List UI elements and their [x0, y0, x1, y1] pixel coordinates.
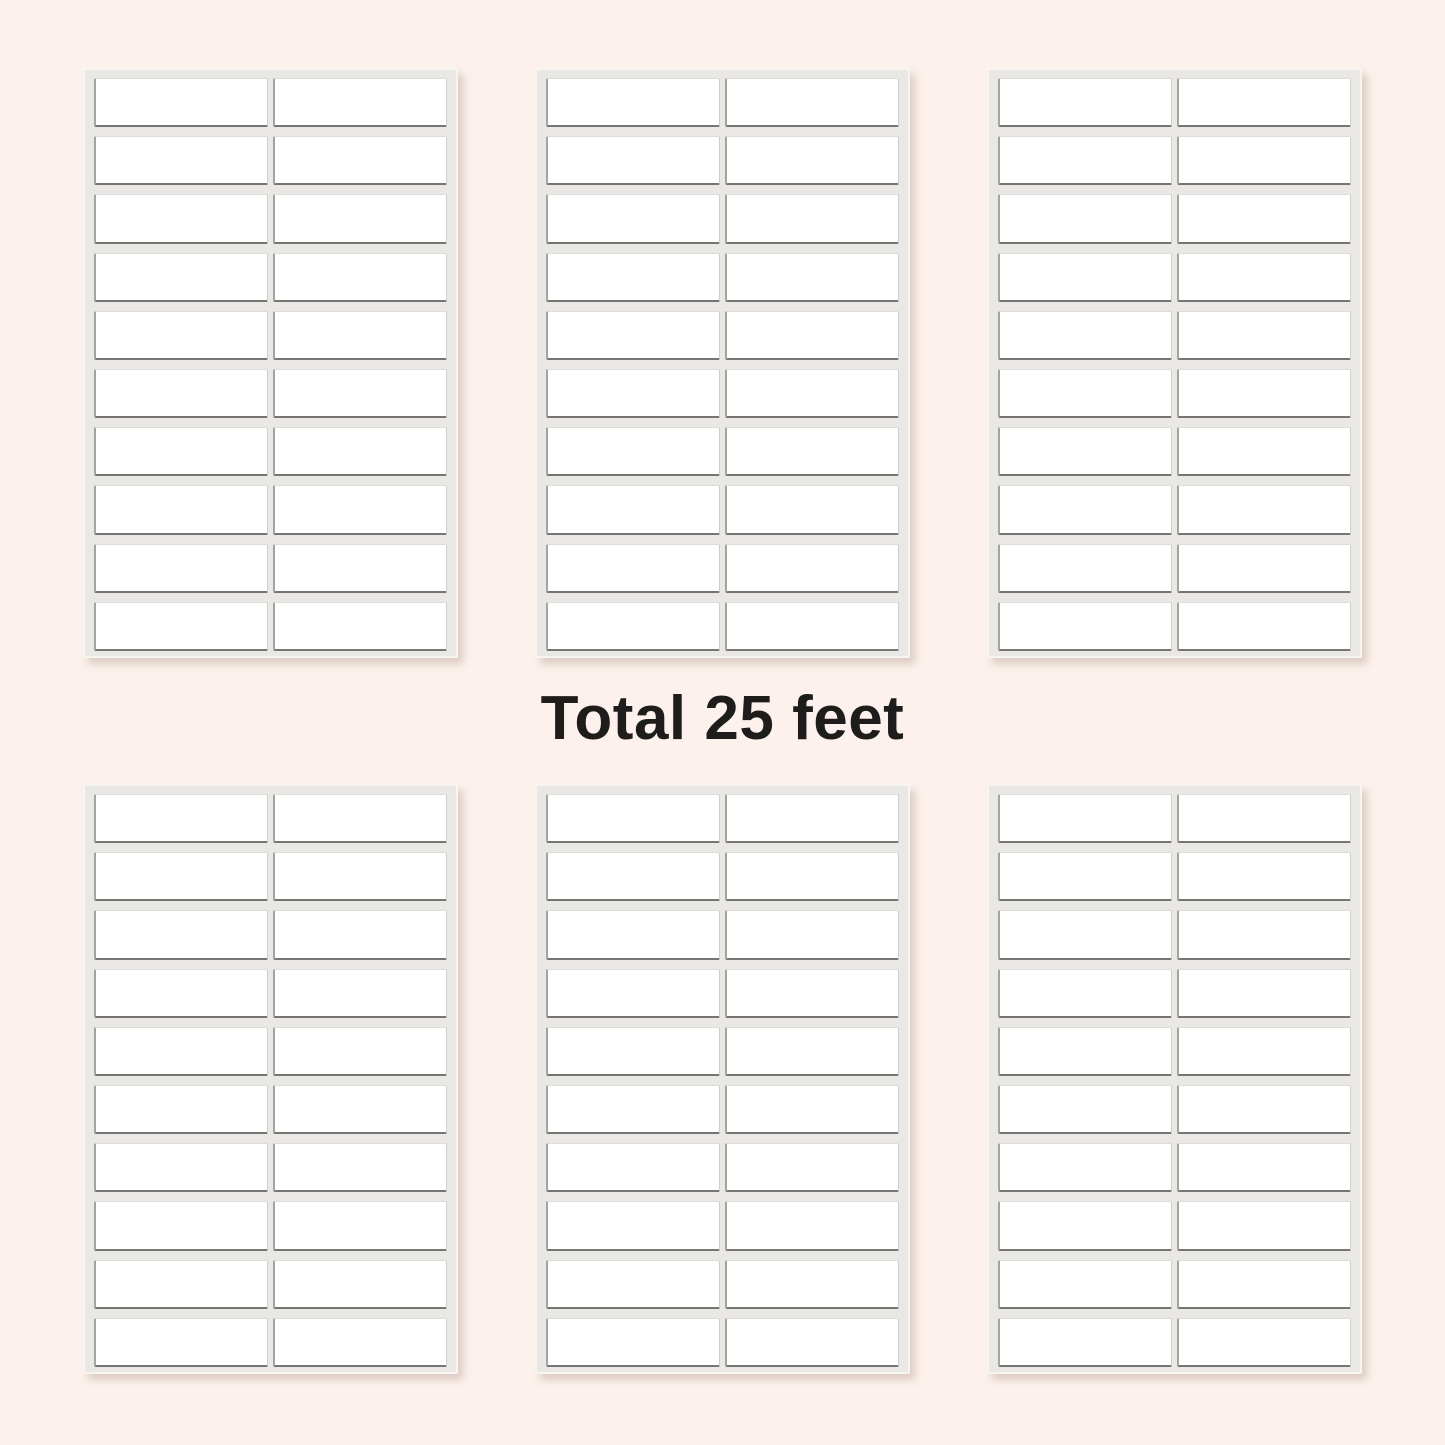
blank-label: [94, 969, 268, 1018]
blank-label: [725, 369, 899, 418]
blank-label: [273, 969, 447, 1018]
blank-label: [273, 369, 447, 418]
blank-label: [1177, 910, 1351, 959]
blank-label: [94, 544, 268, 593]
blank-label: [725, 910, 899, 959]
blank-label: [998, 1085, 1172, 1134]
blank-label: [998, 1143, 1172, 1192]
blank-label: [998, 602, 1172, 651]
blank-label: [546, 369, 720, 418]
blank-label: [273, 253, 447, 302]
blank-label: [546, 544, 720, 593]
blank-label: [546, 311, 720, 360]
blank-label: [1177, 1201, 1351, 1250]
blank-label: [94, 1201, 268, 1250]
blank-label: [94, 78, 268, 127]
blank-label: [94, 910, 268, 959]
blank-label: [1177, 369, 1351, 418]
blank-label: [725, 427, 899, 476]
label-sheet-1: [83, 68, 458, 658]
blank-label: [273, 910, 447, 959]
blank-label: [94, 136, 268, 185]
blank-label: [725, 1201, 899, 1250]
blank-label: [725, 485, 899, 534]
blank-label: [998, 1260, 1172, 1309]
blank-label: [94, 485, 268, 534]
blank-label: [94, 1260, 268, 1309]
blank-label: [273, 1318, 447, 1367]
blank-label: [1177, 1085, 1351, 1134]
blank-label: [998, 1201, 1172, 1250]
blank-label: [94, 253, 268, 302]
blank-label: [546, 910, 720, 959]
blank-label: [998, 969, 1172, 1018]
blank-label: [725, 136, 899, 185]
blank-label: [546, 1027, 720, 1076]
blank-label: [273, 1260, 447, 1309]
blank-label: [1177, 136, 1351, 185]
blank-label: [546, 485, 720, 534]
blank-label: [273, 544, 447, 593]
blank-label: [998, 253, 1172, 302]
blank-label: [998, 78, 1172, 127]
blank-label: [273, 852, 447, 901]
label-sheet-6: [987, 784, 1362, 1374]
blank-label: [546, 1201, 720, 1250]
blank-label: [725, 253, 899, 302]
blank-label: [998, 1027, 1172, 1076]
blank-label: [1177, 253, 1351, 302]
blank-label: [725, 78, 899, 127]
blank-label: [546, 78, 720, 127]
blank-label: [273, 1027, 447, 1076]
blank-label: [273, 1143, 447, 1192]
blank-label: [725, 969, 899, 1018]
blank-label: [725, 1085, 899, 1134]
blank-label: [94, 1318, 268, 1367]
blank-label: [546, 969, 720, 1018]
blank-label: [998, 544, 1172, 593]
blank-label: [94, 1027, 268, 1076]
blank-label: [1177, 544, 1351, 593]
blank-label: [94, 427, 268, 476]
blank-label: [725, 794, 899, 843]
blank-label: [546, 136, 720, 185]
blank-label: [998, 427, 1172, 476]
blank-label: [546, 1085, 720, 1134]
blank-label: [94, 1143, 268, 1192]
blank-label: [273, 602, 447, 651]
blank-label: [273, 1085, 447, 1134]
blank-label: [546, 1143, 720, 1192]
blank-label: [725, 544, 899, 593]
blank-label: [1177, 1143, 1351, 1192]
blank-label: [725, 1260, 899, 1309]
blank-label: [998, 311, 1172, 360]
blank-label: [998, 852, 1172, 901]
blank-label: [1177, 1318, 1351, 1367]
blank-label: [1177, 602, 1351, 651]
blank-label: [546, 427, 720, 476]
blank-label: [998, 369, 1172, 418]
blank-label: [1177, 78, 1351, 127]
blank-label: [546, 1260, 720, 1309]
blank-label: [998, 1318, 1172, 1367]
total-length-text: Total 25 feet: [0, 686, 1445, 752]
blank-label: [998, 794, 1172, 843]
blank-label: [1177, 485, 1351, 534]
blank-label: [725, 1143, 899, 1192]
blank-label: [1177, 852, 1351, 901]
blank-label: [725, 311, 899, 360]
label-sheet-3: [987, 68, 1362, 658]
blank-label: [94, 194, 268, 243]
blank-label: [725, 194, 899, 243]
blank-label: [273, 485, 447, 534]
product-image-canvas: Total 25 feet: [0, 0, 1445, 1445]
blank-label: [546, 794, 720, 843]
blank-label: [725, 602, 899, 651]
blank-label: [546, 602, 720, 651]
blank-label: [273, 78, 447, 127]
blank-label: [1177, 1027, 1351, 1076]
blank-label: [725, 1318, 899, 1367]
label-sheet-4: [83, 784, 458, 1374]
blank-label: [273, 311, 447, 360]
label-sheet-5: [535, 784, 910, 1374]
blank-label: [1177, 1260, 1351, 1309]
blank-label: [94, 1085, 268, 1134]
blank-label: [998, 485, 1172, 534]
blank-label: [94, 602, 268, 651]
blank-label: [273, 1201, 447, 1250]
blank-label: [273, 427, 447, 476]
blank-label: [94, 794, 268, 843]
blank-label: [998, 194, 1172, 243]
blank-label: [1177, 194, 1351, 243]
sheet-row-bottom: [0, 784, 1445, 1374]
blank-label: [273, 194, 447, 243]
blank-label: [94, 369, 268, 418]
blank-label: [94, 852, 268, 901]
blank-label: [546, 194, 720, 243]
blank-label: [1177, 311, 1351, 360]
label-sheet-2: [535, 68, 910, 658]
sheet-row-top: [0, 68, 1445, 658]
blank-label: [725, 1027, 899, 1076]
blank-label: [546, 1318, 720, 1367]
blank-label: [273, 136, 447, 185]
blank-label: [1177, 969, 1351, 1018]
blank-label: [998, 910, 1172, 959]
blank-label: [1177, 427, 1351, 476]
blank-label: [546, 852, 720, 901]
blank-label: [998, 136, 1172, 185]
blank-label: [273, 794, 447, 843]
blank-label: [1177, 794, 1351, 843]
blank-label: [725, 852, 899, 901]
blank-label: [94, 311, 268, 360]
blank-label: [546, 253, 720, 302]
